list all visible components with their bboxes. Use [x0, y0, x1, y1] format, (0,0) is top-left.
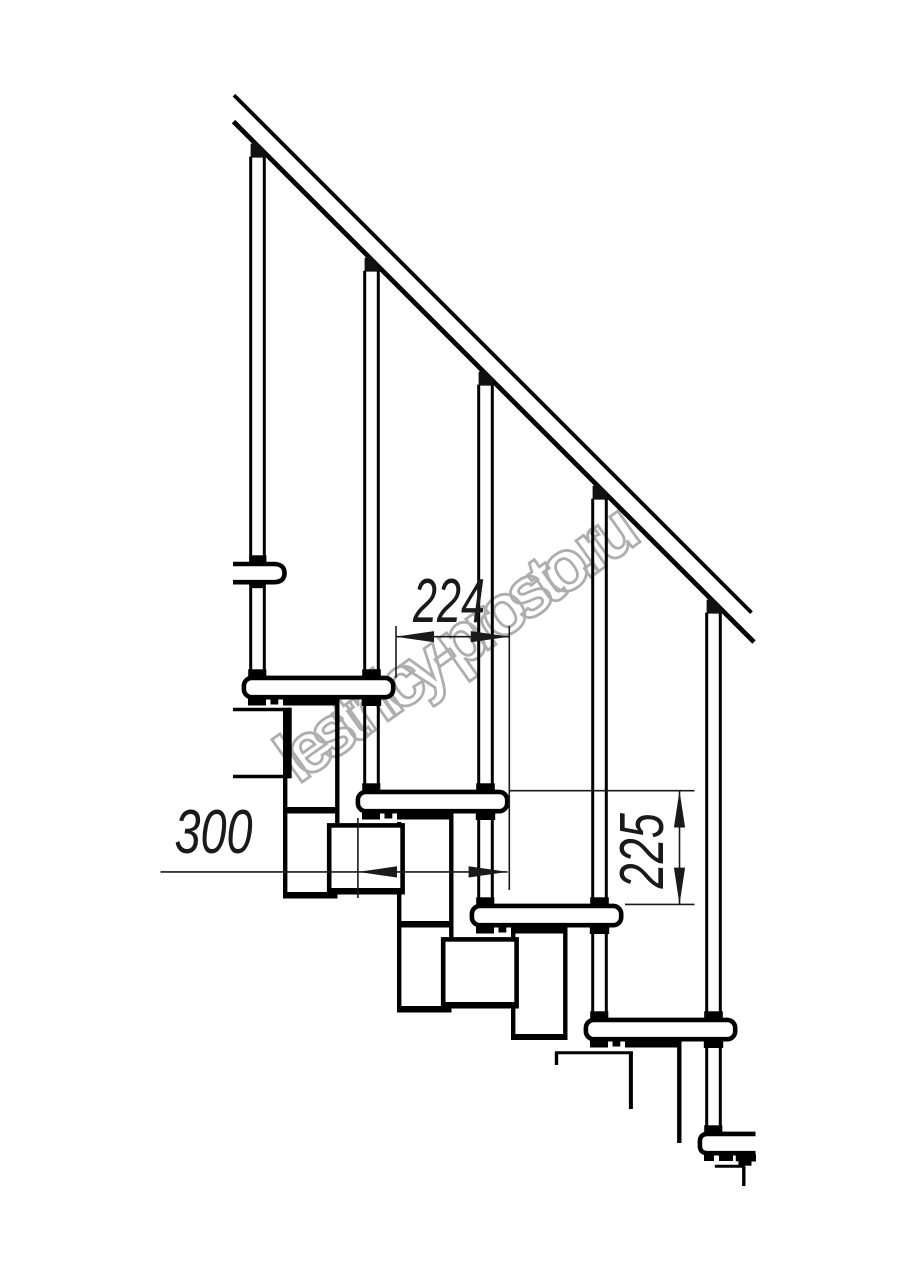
- svg-text:224: 224: [412, 567, 485, 636]
- svg-text:225: 225: [608, 813, 677, 890]
- svg-text:300: 300: [174, 797, 252, 867]
